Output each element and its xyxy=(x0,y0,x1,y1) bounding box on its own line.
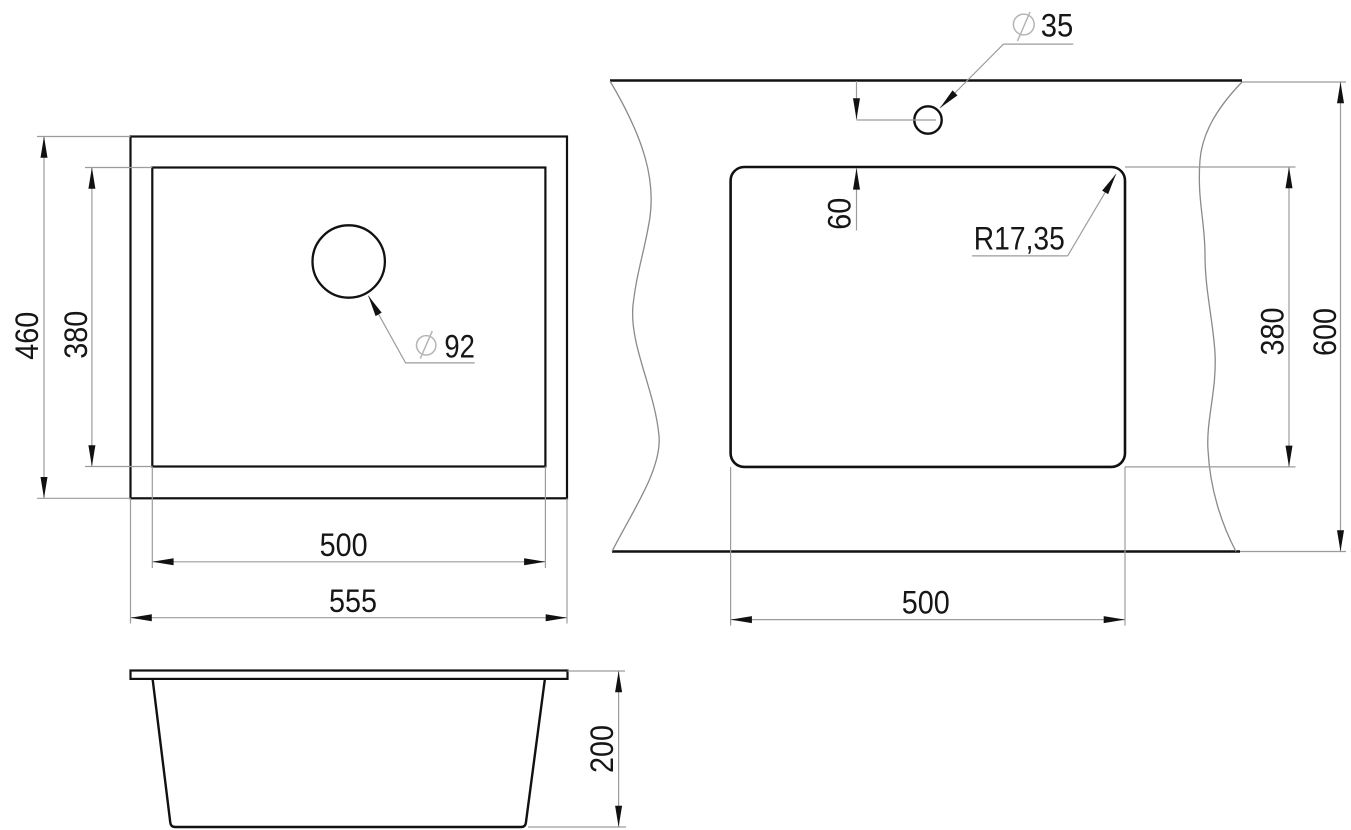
svg-text:92: 92 xyxy=(444,328,475,364)
svg-text:60: 60 xyxy=(821,198,857,230)
svg-text:500: 500 xyxy=(320,527,368,563)
svg-text:R17,35: R17,35 xyxy=(974,221,1065,257)
svg-text:380: 380 xyxy=(58,311,94,359)
svg-text:555: 555 xyxy=(329,583,377,619)
svg-text:600: 600 xyxy=(1307,308,1343,356)
svg-text:380: 380 xyxy=(1255,308,1291,356)
svg-text:200: 200 xyxy=(584,725,620,773)
svg-text:460: 460 xyxy=(9,312,45,360)
svg-text:500: 500 xyxy=(902,585,950,621)
svg-text:35: 35 xyxy=(1041,8,1074,44)
